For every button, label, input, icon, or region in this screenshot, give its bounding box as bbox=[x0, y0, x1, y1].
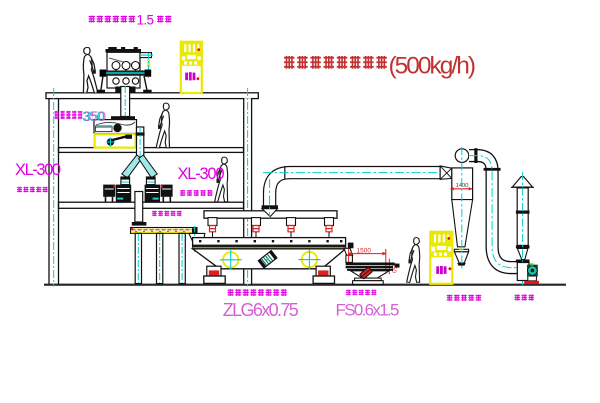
svg-text:XL-300: XL-300 bbox=[178, 165, 225, 183]
svg-text:XL-300: XL-300 bbox=[15, 161, 61, 179]
svg-text:(500kg/h): (500kg/h) bbox=[389, 53, 477, 80]
svg-text:350: 350 bbox=[84, 108, 107, 124]
svg-text:1.5: 1.5 bbox=[137, 13, 155, 28]
svg-text:ZLG6x0.75: ZLG6x0.75 bbox=[223, 300, 299, 320]
svg-text:1500: 1500 bbox=[357, 248, 372, 255]
svg-text:FS0.6x1.5: FS0.6x1.5 bbox=[336, 300, 400, 319]
